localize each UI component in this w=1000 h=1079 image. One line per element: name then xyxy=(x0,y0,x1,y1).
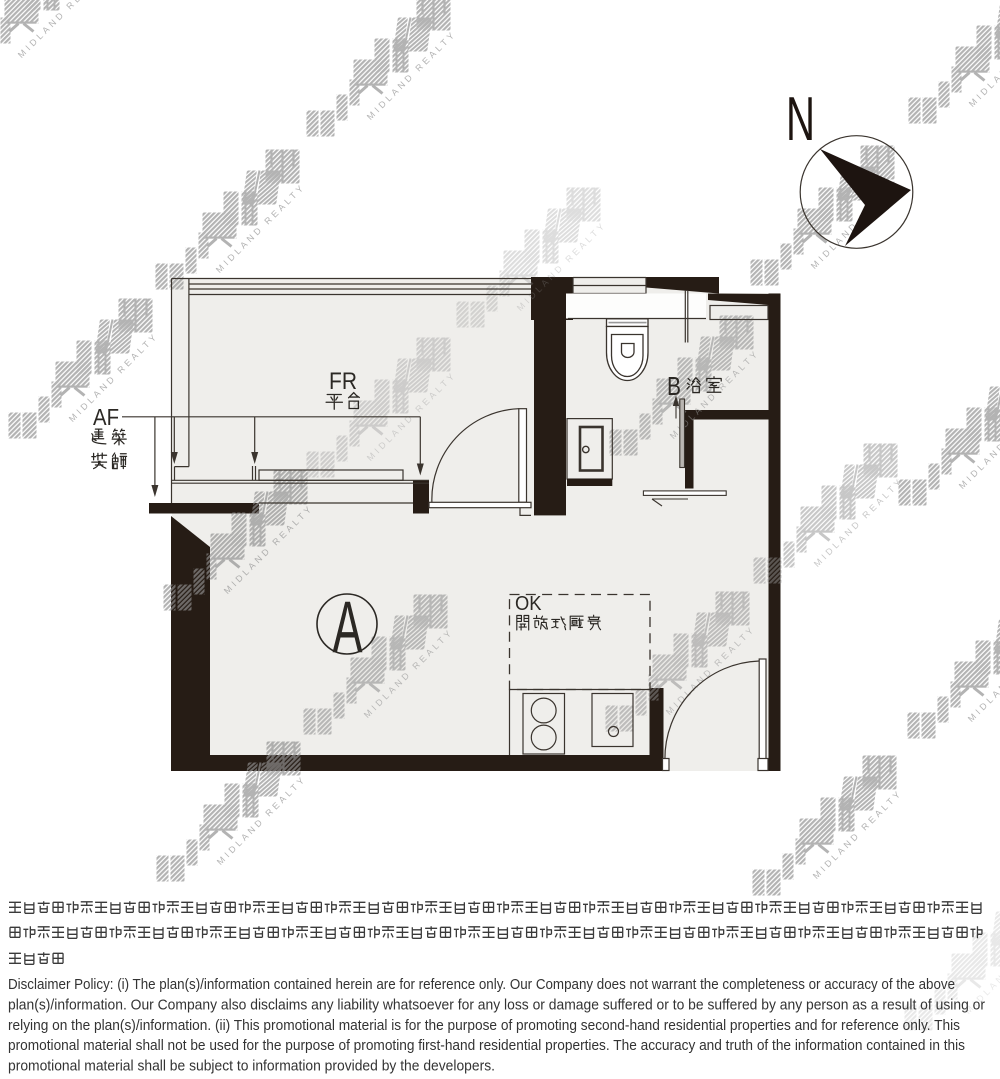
svg-text:FR: FR xyxy=(329,368,357,395)
svg-text:promotional material shall not: promotional material shall not be used f… xyxy=(8,1037,965,1054)
svg-text:A: A xyxy=(333,588,363,669)
svg-text:relying on the plan(s)/informa: relying on the plan(s)/information. (ii)… xyxy=(8,1017,960,1034)
svg-text:Disclaimer Policy: (i) The pla: Disclaimer Policy: (i) The plan(s)/infor… xyxy=(8,976,955,993)
svg-text:OK: OK xyxy=(515,592,542,615)
svg-text:B: B xyxy=(667,371,681,401)
svg-text:promotional material shall be: promotional material shall be subject to… xyxy=(8,1058,495,1075)
svg-text:AF: AF xyxy=(93,404,119,430)
svg-text:plan(s)/information. Our Compa: plan(s)/information. Our Company also di… xyxy=(8,996,985,1013)
svg-text:N: N xyxy=(786,85,815,154)
